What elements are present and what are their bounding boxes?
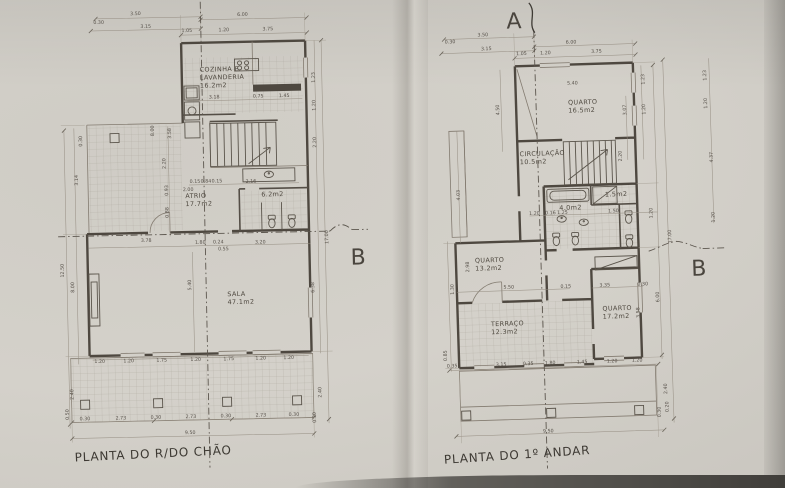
dimension-label: 0.50 xyxy=(65,409,71,420)
section-marker-b-right: B xyxy=(691,256,707,281)
dimension-label: 2.73 xyxy=(255,412,266,418)
pergola-slats xyxy=(459,365,656,421)
chimney-wall xyxy=(253,84,301,92)
ground-floor-caption: PLANTA DO R/DO CHÃO xyxy=(74,442,232,464)
dimension-label: 3.07 xyxy=(622,104,628,115)
dimension-label: 1.80 xyxy=(195,240,206,246)
dimension-label: 4.03 xyxy=(456,190,462,201)
dimension-label: 1.20 xyxy=(641,104,647,115)
dimension-label: 1.23 xyxy=(702,70,708,81)
room-label: QUARTO13.2m2 xyxy=(475,256,505,273)
room-label: QUARTO16.5m2 xyxy=(568,98,598,115)
dimension-label: 8.00 xyxy=(150,125,156,136)
dimension-label: 0.88 xyxy=(165,207,171,218)
dimension-label: 3.75 xyxy=(591,49,602,55)
dimension-label: 2.40 xyxy=(317,387,323,398)
dimension-label: 2.98 xyxy=(465,261,471,272)
dimension-label: 0.85 xyxy=(443,350,449,361)
dimension-label: 0.15 xyxy=(212,178,223,184)
dimension-label: 8.00 xyxy=(70,282,76,293)
dimension-label: 2.20 xyxy=(161,158,167,169)
dimension-label: 0.15 xyxy=(560,284,571,290)
dimension-label: 1.20 xyxy=(703,98,709,109)
room-label: SALA47.1m2 xyxy=(227,290,254,307)
dimension-label: 1.05 xyxy=(181,28,192,34)
dimension-label: 2.16 xyxy=(246,179,257,185)
dimension-label: 3.15 xyxy=(481,46,492,52)
section-squiggle-a xyxy=(529,3,535,33)
dimension-label: 12.50 xyxy=(60,264,66,278)
dimension-label: 5.50 xyxy=(503,284,514,290)
dimension-label: 1.20 xyxy=(711,212,717,223)
first-floor-plan: A B QUARTO16.5m2CIRCULAÇÃO10.5m24.0m21.5… xyxy=(430,0,734,472)
dimension-label: 1.75 xyxy=(156,358,167,364)
dimension-label: 0.30 xyxy=(657,407,663,418)
dimension-label: 1.80 xyxy=(545,360,556,366)
terrace-door-swing xyxy=(472,282,503,303)
dimension-label: 3.35 xyxy=(599,282,610,288)
dimension-label: 0.30 xyxy=(151,415,162,421)
dimension-label: 2.20 xyxy=(618,151,624,162)
dimension-label: 0.55 xyxy=(218,246,229,252)
dimension-label: 2.20 xyxy=(312,137,318,148)
dimension-label: 5.40 xyxy=(187,280,193,291)
dimension-label: 3.50 xyxy=(477,32,488,38)
dimension-label: 0.30 xyxy=(288,412,299,418)
dimension-label: 3.58 xyxy=(635,307,641,318)
dimension-label: 1.20 xyxy=(218,27,229,33)
dimension-label: 2.00 xyxy=(183,187,194,193)
dimension-label: 3.14 xyxy=(74,175,80,186)
dimension-label: 0.24 xyxy=(213,239,224,245)
room-label: ATRIO17.7m2 xyxy=(185,192,212,209)
dimension-label: 1.05 xyxy=(516,51,527,57)
dimension-label: 1.45 xyxy=(279,93,290,99)
room-label: 6.2m2 xyxy=(261,190,284,198)
section-line-b-first xyxy=(648,240,726,251)
dimension-label: 3.58 xyxy=(167,128,173,139)
dimension-label: 0.30 xyxy=(93,20,104,26)
dimension-label: 0.35 xyxy=(523,361,534,367)
room-label: CIRCULAÇÃO10.5m2 xyxy=(519,148,565,166)
dimension-label: 0.15 xyxy=(190,179,201,185)
dimension-label: 2.73 xyxy=(116,415,127,421)
dimension-label: 2.40 xyxy=(663,383,669,394)
dimension-label: 1.20 xyxy=(94,359,105,365)
dimension-label: 9.50 xyxy=(185,430,196,436)
dimension-label: 1.20 xyxy=(540,50,551,56)
dimension-label: 1.23 xyxy=(311,72,317,83)
photographed-blueprint: B COZINHA ELAVANDERIA16.2m2ATRIO17.7m26.… xyxy=(0,0,785,488)
dimension-label: 1.23 xyxy=(640,74,646,85)
dimension-label: 0.20 xyxy=(664,401,670,412)
dimension-label: 1.25 xyxy=(557,210,568,216)
dimension-label: 0.16 xyxy=(545,210,556,216)
dimension-label: 1.75 xyxy=(223,356,234,362)
dimension-label: 1.20 xyxy=(529,211,540,217)
dimension-label: 6.00 xyxy=(566,39,577,45)
dimension-label: 0.30 xyxy=(78,136,84,147)
dimension-label: 1.30 xyxy=(450,284,456,295)
dimension-label: 3.15 xyxy=(140,24,151,30)
dimension-label: 1.20 xyxy=(607,358,618,364)
room-label: QUARTO17.2m2 xyxy=(602,304,632,321)
dimension-label: 2.73 xyxy=(186,414,197,420)
first-stairs xyxy=(563,140,616,185)
dimension-label: 1.20 xyxy=(255,355,266,361)
section-marker-a: A xyxy=(506,9,522,34)
dimension-label: 17.00 xyxy=(324,230,330,244)
ground-stairs xyxy=(210,122,277,166)
ground-tiled-floors xyxy=(64,56,314,423)
dimension-label: 0.30 xyxy=(221,413,232,419)
dimension-label: 1.20 xyxy=(311,100,317,111)
fireplace xyxy=(89,274,100,326)
dimension-label: 0.30 xyxy=(445,39,456,45)
dimension-label: 0.30 xyxy=(312,412,318,423)
dimension-label: 1.20 xyxy=(648,208,654,219)
dimension-label: 1.20 xyxy=(190,357,201,363)
dimension-label: 1.20 xyxy=(632,357,643,363)
dimension-label: 4.37 xyxy=(709,152,715,163)
dimension-label: 3.20 xyxy=(255,239,266,245)
dimension-label: 1.50 xyxy=(608,208,619,214)
dimension-label: 6.38 xyxy=(310,282,316,293)
dimension-label: 9.50 xyxy=(543,428,554,434)
ground-floor-plan: B COZINHA ELAVANDERIA16.2m2ATRIO17.7m26.… xyxy=(53,0,373,471)
dimension-label: 4.50 xyxy=(495,104,501,115)
dimension-label: 3.78 xyxy=(141,238,152,244)
dimension-label: 3.75 xyxy=(262,26,273,32)
dimension-label: 0.35 xyxy=(447,363,458,369)
dimension-label: 0.30 xyxy=(637,281,648,287)
dimension-label: 3.50 xyxy=(130,11,141,17)
dimension-label: 3.18 xyxy=(209,94,220,100)
first-floor-caption: PLANTA DO 1º ANDAR xyxy=(444,443,591,467)
dimension-label: 0.84 xyxy=(201,179,212,185)
dimension-label: 2.40 xyxy=(69,389,75,400)
dimension-label: 0.75 xyxy=(253,93,264,99)
dimension-label: 1.45 xyxy=(577,359,588,365)
dimension-label: 0.93 xyxy=(164,185,170,196)
floor-plans-drawing: B COZINHA ELAVANDERIA16.2m2ATRIO17.7m26.… xyxy=(0,0,785,488)
dimension-label: 3.15 xyxy=(496,362,507,368)
room-label: 1.5m2 xyxy=(605,190,628,199)
dimension-label: 6.00 xyxy=(655,292,661,303)
dimension-label: 17.00 xyxy=(667,230,673,244)
dimension-label: 0.30 xyxy=(80,416,91,422)
section-marker-b-left: B xyxy=(350,245,366,270)
dimension-label: 5.40 xyxy=(567,80,578,86)
dimension-label: 1.20 xyxy=(123,358,134,364)
dimension-label: 6.00 xyxy=(237,12,248,18)
dimension-label: 1.20 xyxy=(283,355,294,361)
